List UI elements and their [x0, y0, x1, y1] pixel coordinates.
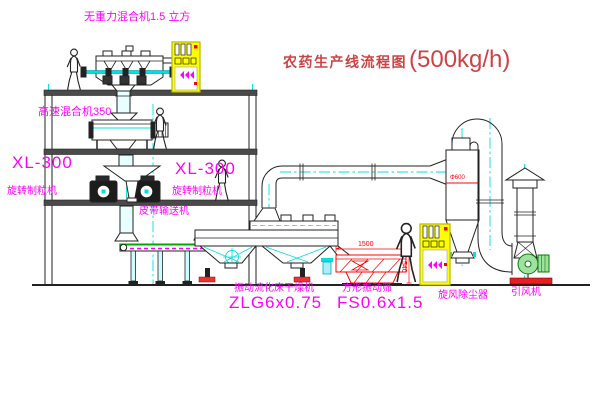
control-cabinet-ground-icon — [420, 224, 450, 285]
label-high-speed-mixer: 高速混合机350 — [38, 107, 111, 118]
drawing-title: 农药生产线流程图 (500kg/h) — [283, 42, 510, 74]
exhaust-duct-drawing — [262, 159, 448, 208]
control-cabinet-top-icon — [172, 42, 200, 92]
label-cyclone: 旋风除尘器 — [438, 291, 488, 301]
dimension-sieve-height: 540 — [400, 261, 407, 273]
label-fan: 引风机 — [511, 288, 541, 298]
title-text: 农药生产线流程图 — [283, 42, 407, 72]
dimension-sieve-length: 1500 — [358, 241, 374, 248]
dimension-cyclone-diameter: Φ600 — [450, 175, 465, 181]
label-granulator-left-name: 旋转制粒机 — [7, 187, 57, 197]
cyclone-drawing — [446, 119, 512, 275]
person-icon-top-floor — [67, 49, 80, 90]
label-sieve-model: FS0.6x1.5 — [337, 294, 424, 311]
label-granulator-right-name: 旋转制粒机 — [172, 187, 222, 197]
label-dryer-model: ZLG6x0.75 — [229, 294, 322, 311]
title-capacity: (500kg/h) — [409, 46, 510, 74]
person-icon-ground — [397, 224, 416, 282]
granulator-drawing — [90, 155, 160, 202]
label-granulator-right-model: XL-300 — [175, 160, 236, 177]
label-belt-conveyor: 皮带输送机 — [139, 207, 189, 217]
gravity-free-mixer-drawing — [81, 46, 177, 115]
label-gravity-mixer: 无重力混合机1.5 立方 — [84, 12, 190, 23]
cad-drawing-canvas: 农药生产线流程图 (500kg/h) 无重力混合机1.5 立方 高速混合机350… — [0, 0, 600, 403]
label-granulator-left-model: XL-300 — [12, 154, 73, 171]
